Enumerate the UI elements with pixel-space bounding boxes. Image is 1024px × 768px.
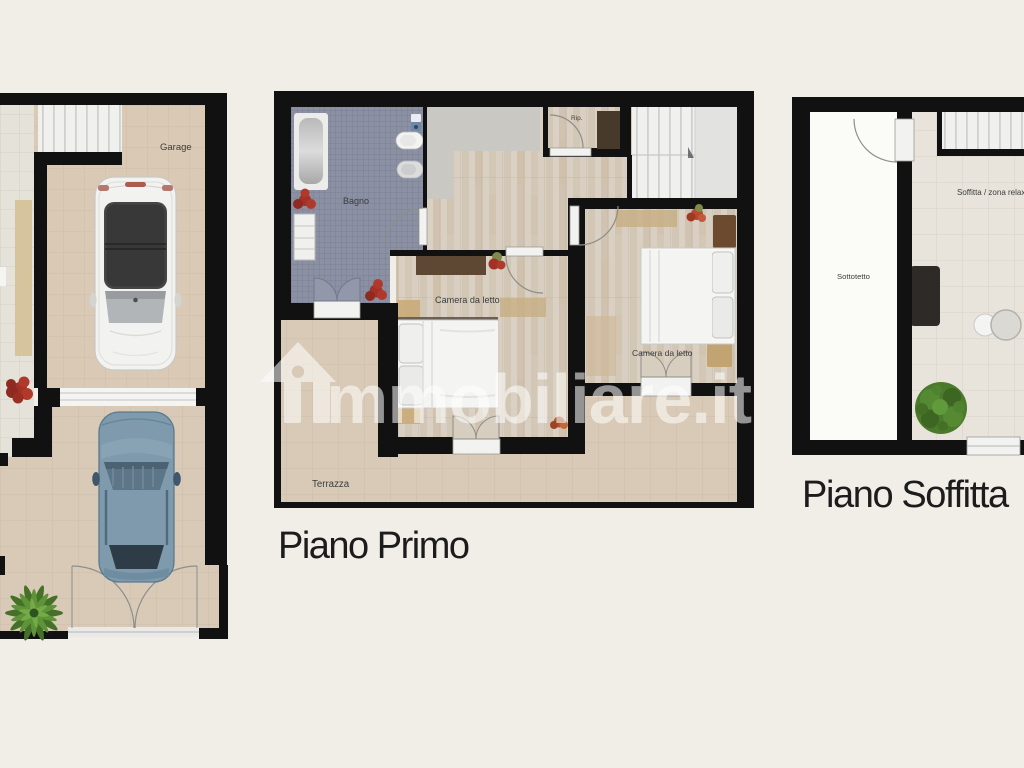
svg-text:Camera da letto: Camera da letto: [435, 295, 500, 305]
svg-text:Terrazza: Terrazza: [312, 479, 350, 490]
svg-text:Piano Primo: Piano Primo: [278, 525, 469, 567]
svg-text:Sottotetto: Sottotetto: [837, 272, 870, 281]
svg-text:Rip.: Rip.: [571, 115, 583, 122]
svg-text:Bagno: Bagno: [343, 196, 369, 206]
svg-text:Piano Soffitta: Piano Soffitta: [802, 474, 1010, 516]
svg-text:Camera da letto: Camera da letto: [632, 348, 693, 358]
svg-text:Soffitta / zona relax: Soffitta / zona relax: [957, 188, 1024, 197]
svg-text:mmobiliare.it: mmobiliare.it: [326, 360, 752, 438]
svg-text:Garage: Garage: [160, 142, 192, 153]
